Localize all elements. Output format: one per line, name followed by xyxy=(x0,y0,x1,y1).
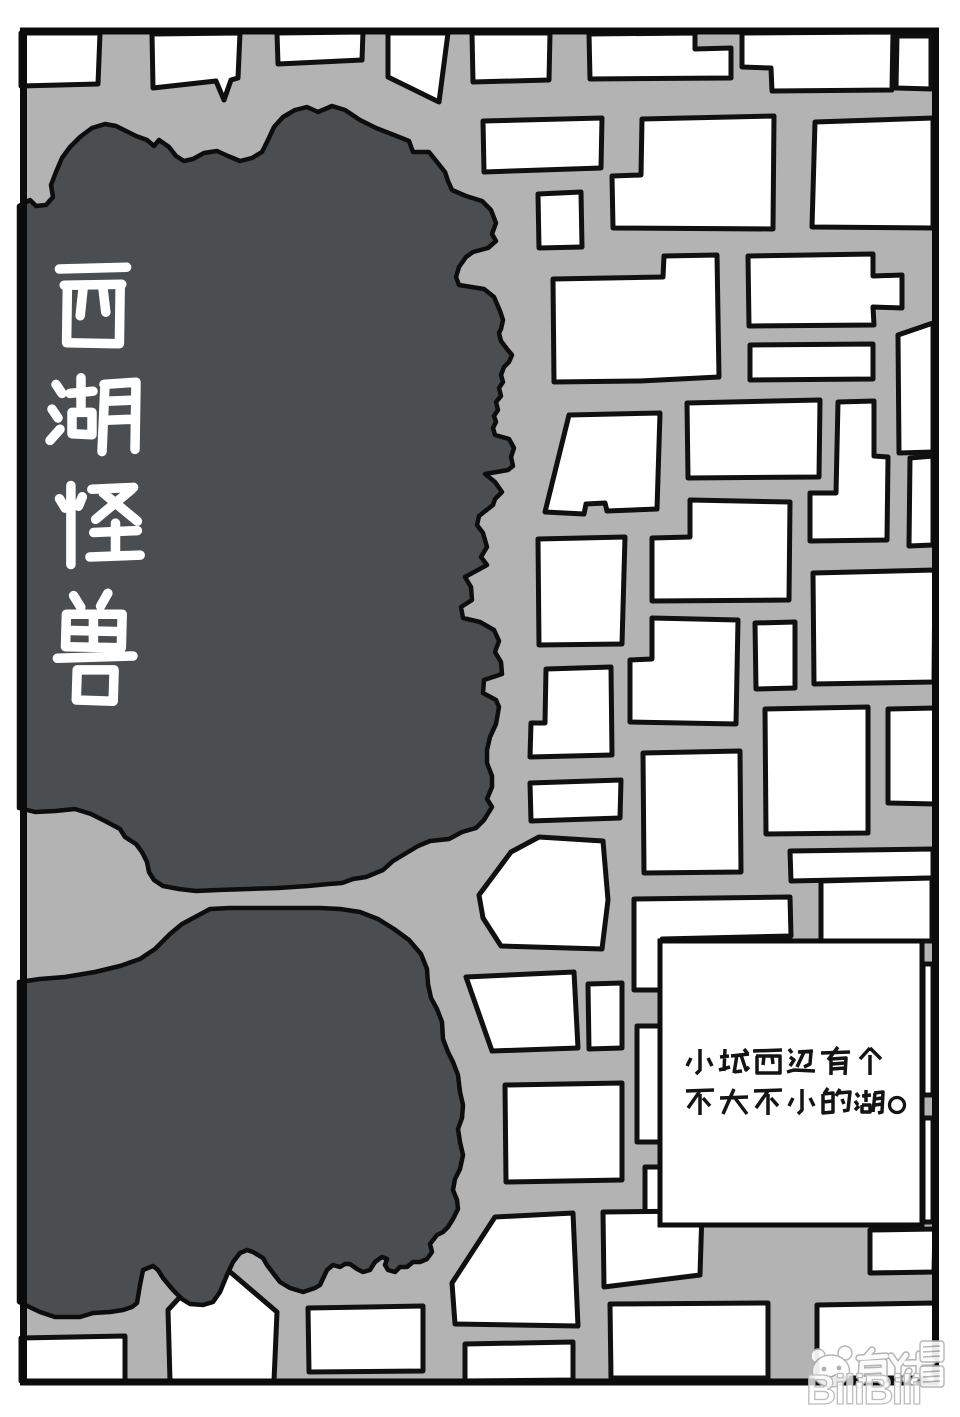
svg-text:BiliBili: BiliBili xyxy=(806,1366,921,1412)
